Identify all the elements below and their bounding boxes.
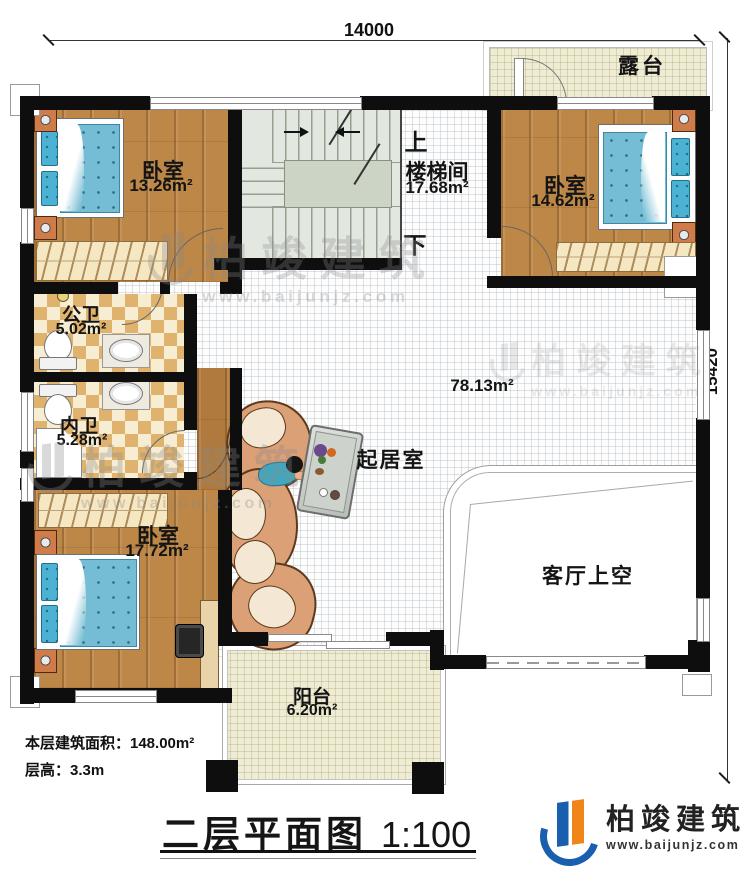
stair-landing bbox=[284, 160, 392, 208]
pillow bbox=[41, 131, 58, 166]
brand-website: www.baijunjz.com bbox=[606, 838, 746, 852]
window bbox=[697, 598, 710, 642]
wall bbox=[644, 655, 710, 669]
sheet bbox=[641, 132, 665, 222]
wall bbox=[218, 490, 232, 632]
bedroom-tl-area: 13.26m² bbox=[129, 176, 192, 196]
bedroom-tl-wardrobe bbox=[36, 241, 168, 281]
wall bbox=[20, 96, 34, 208]
window bbox=[150, 97, 362, 110]
window bbox=[21, 392, 34, 452]
stair-up-label: 上 bbox=[405, 123, 428, 157]
pillow bbox=[41, 563, 58, 601]
balcony-slider bbox=[268, 634, 332, 642]
balcony-column bbox=[412, 762, 444, 794]
wall bbox=[360, 96, 557, 110]
dimension-width-label: 14000 bbox=[344, 20, 394, 41]
wall bbox=[696, 96, 710, 330]
dimension-line-right bbox=[727, 38, 728, 780]
bedroom-bl-area: 17.72m² bbox=[125, 541, 188, 561]
sheet bbox=[60, 559, 86, 645]
title-underline bbox=[160, 850, 476, 859]
dimension-tick bbox=[718, 31, 730, 43]
window bbox=[75, 690, 157, 703]
stairwell bbox=[242, 110, 402, 258]
floor-plan-canvas: 14000 15420 露台 卧室 13.26m² 上 楼梯间 17.68m² … bbox=[0, 0, 750, 876]
living-name: 起居室 bbox=[357, 444, 426, 474]
nightstand bbox=[34, 216, 57, 240]
sink bbox=[109, 382, 143, 405]
pillow bbox=[41, 605, 58, 643]
brand-logo-icon bbox=[540, 800, 596, 859]
terrace-label: 露台 bbox=[618, 50, 666, 80]
void-name: 客厅上空 bbox=[542, 560, 634, 590]
wall bbox=[220, 282, 242, 294]
wall bbox=[160, 282, 170, 294]
wall bbox=[487, 276, 710, 288]
window bbox=[21, 468, 34, 502]
stair-area: 17.68m² bbox=[405, 178, 468, 198]
wall bbox=[20, 282, 118, 294]
wall bbox=[696, 418, 710, 598]
wall bbox=[218, 632, 268, 646]
person-head bbox=[286, 456, 303, 473]
table-item bbox=[315, 468, 324, 475]
brand-logo: 柏竣建筑 www.baijunjz.com bbox=[540, 800, 746, 859]
wall bbox=[184, 294, 197, 430]
wall bbox=[487, 110, 501, 238]
window bbox=[697, 330, 710, 420]
brand-name: 柏竣建筑 bbox=[606, 804, 746, 836]
stair-flight-lower bbox=[272, 206, 400, 259]
railing-window bbox=[486, 656, 646, 669]
table-item bbox=[330, 490, 340, 500]
balcony-slider bbox=[326, 641, 390, 649]
wall bbox=[20, 478, 184, 490]
wall bbox=[430, 655, 486, 669]
sofa-cushion bbox=[226, 488, 266, 540]
wall bbox=[184, 472, 197, 490]
table-item bbox=[319, 488, 328, 497]
table-flowers bbox=[318, 456, 326, 464]
wall bbox=[20, 372, 184, 382]
nightstand bbox=[34, 648, 57, 673]
wall bbox=[20, 96, 150, 110]
dimension-tick bbox=[718, 772, 730, 784]
pillow bbox=[41, 171, 58, 206]
stair-arrow-icon bbox=[300, 127, 309, 137]
wall bbox=[20, 242, 34, 392]
bedroom-tr-bed bbox=[598, 124, 696, 230]
balcony-column bbox=[206, 760, 238, 792]
pillar bbox=[682, 674, 712, 696]
stair-arrow-icon bbox=[344, 131, 360, 133]
pillow bbox=[671, 138, 690, 176]
window bbox=[21, 208, 34, 244]
bedroom-tr-area: 14.62m² bbox=[531, 191, 594, 211]
wall bbox=[214, 258, 402, 270]
wall bbox=[20, 500, 34, 704]
bedroom-tl-bed bbox=[36, 118, 124, 218]
window bbox=[557, 97, 654, 110]
balcony-area: 6.20m² bbox=[287, 702, 338, 720]
chair bbox=[175, 624, 204, 658]
nightstand bbox=[34, 530, 57, 555]
floor-area-note: 本层建筑面积：148.00m² bbox=[25, 732, 194, 753]
toilet-tank bbox=[39, 357, 77, 370]
stair-flight-side bbox=[242, 160, 284, 208]
bath-inner-area: 5.28m² bbox=[57, 432, 108, 450]
sheet bbox=[60, 124, 84, 211]
wall bbox=[228, 110, 242, 282]
pillow bbox=[671, 180, 690, 218]
sink bbox=[109, 339, 143, 362]
stair-down-label: 下 bbox=[404, 226, 427, 260]
wall bbox=[20, 450, 34, 468]
wall bbox=[230, 368, 242, 490]
table-flowers bbox=[327, 448, 336, 457]
stair-arrow-icon bbox=[284, 131, 300, 133]
bath-public-area: 5.02m² bbox=[56, 321, 107, 339]
living-area: 78.13m² bbox=[450, 376, 513, 396]
stair-arrow-icon bbox=[335, 127, 344, 137]
bedroom-bl-bed bbox=[36, 554, 140, 650]
floor-height-note: 层高：3.3m bbox=[25, 759, 104, 780]
